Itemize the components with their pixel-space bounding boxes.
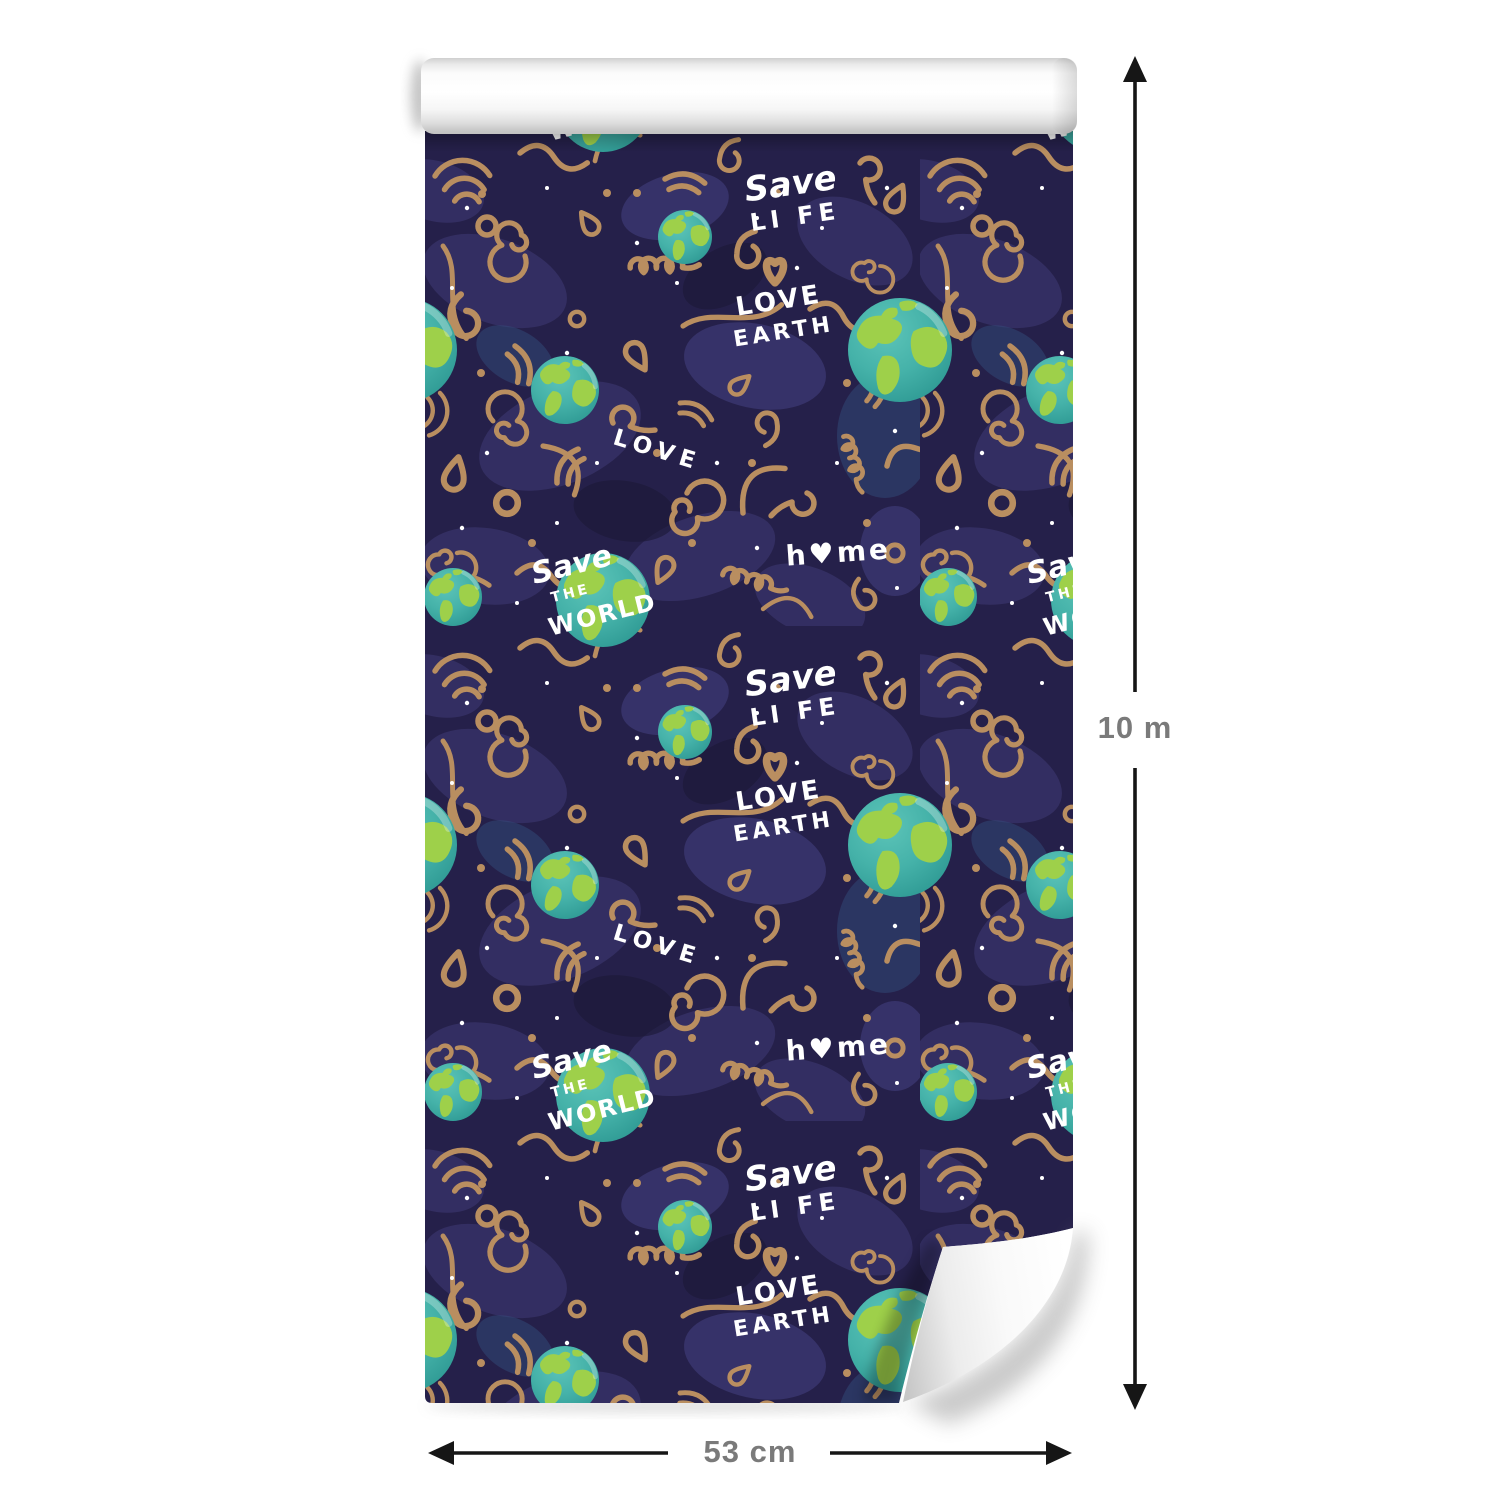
height-dimension-label: 10 m	[1080, 710, 1190, 746]
wallpaper-product-image: Save THE WORLD	[0, 0, 1500, 1500]
under-roll-shadow	[425, 131, 1073, 153]
wallpaper-roll-graphic: Save THE WORLD	[0, 0, 1500, 1500]
arrow-head-up-icon	[1123, 56, 1147, 82]
arrow-head-left-icon	[428, 1441, 454, 1465]
wallpaper-sheet	[425, 131, 1073, 1403]
paper-roll	[421, 58, 1077, 134]
arrow-head-down-icon	[1123, 1384, 1147, 1410]
width-dimension-label: 53 cm	[672, 1434, 828, 1470]
arrow-head-right-icon	[1046, 1441, 1072, 1465]
